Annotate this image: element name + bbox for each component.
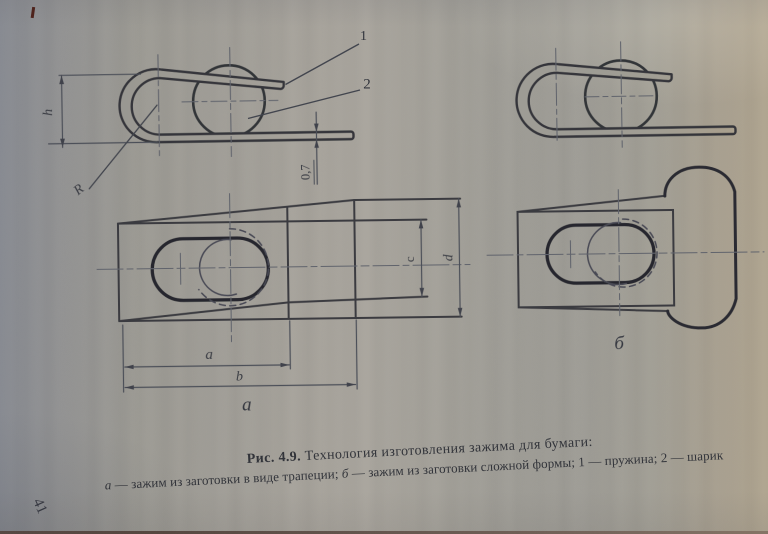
svg-text:d: d <box>440 254 455 261</box>
svg-text:0,7: 0,7 <box>298 164 312 180</box>
svg-text:b: b <box>236 369 243 384</box>
svg-text:2: 2 <box>363 77 371 93</box>
svg-text:б: б <box>614 333 625 354</box>
svg-text:1: 1 <box>360 29 367 44</box>
svg-text:a: a <box>205 347 213 363</box>
svg-text:h: h <box>41 109 56 116</box>
svg-text:a: a <box>242 394 252 415</box>
svg-text:c: c <box>402 256 417 262</box>
